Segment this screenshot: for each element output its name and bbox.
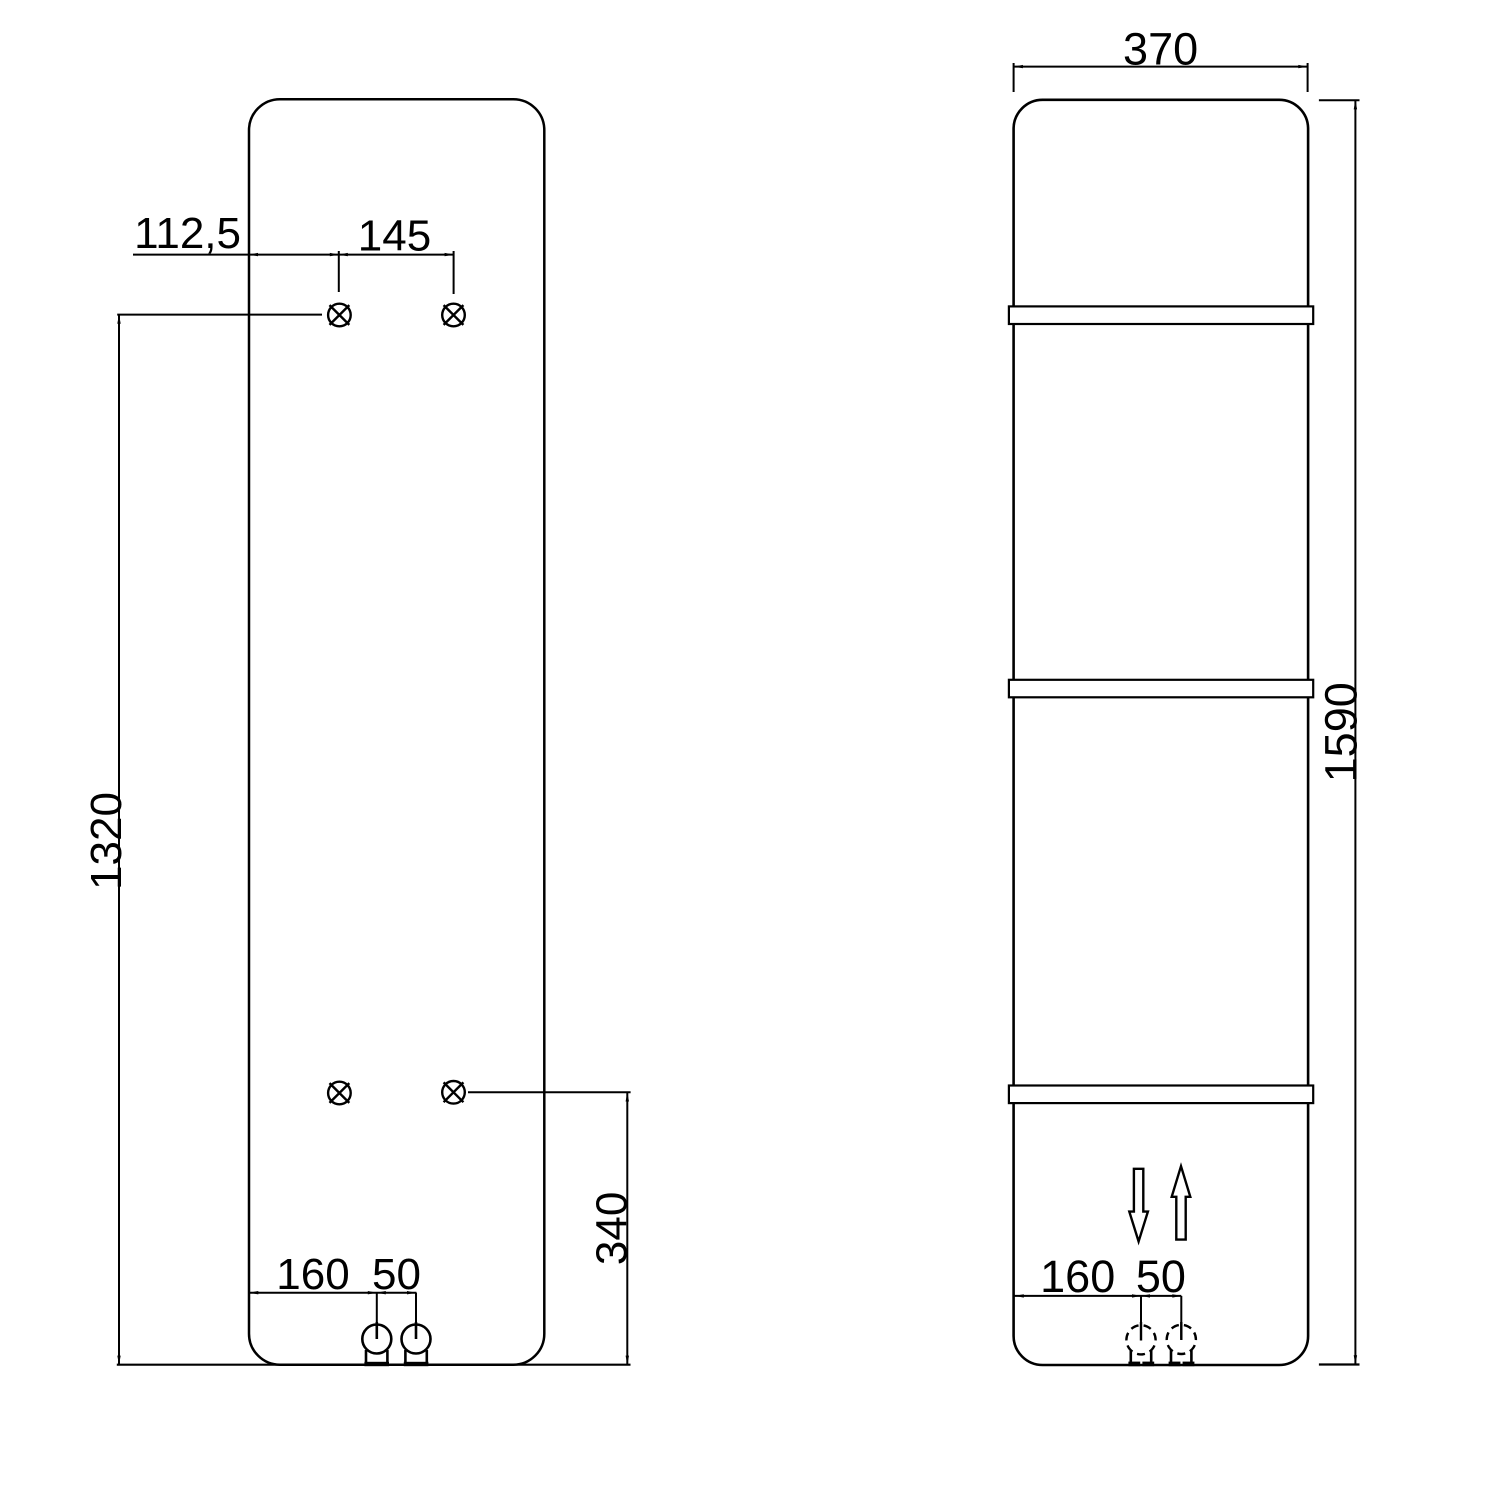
svg-text:1590: 1590 <box>1315 682 1366 782</box>
svg-text:370: 370 <box>1123 24 1198 75</box>
svg-text:145: 145 <box>358 212 431 261</box>
svg-text:112,5: 112,5 <box>134 209 241 258</box>
svg-text:50: 50 <box>1136 1251 1186 1302</box>
svg-text:160: 160 <box>276 1250 349 1299</box>
svg-text:160: 160 <box>1040 1251 1115 1302</box>
svg-text:1320: 1320 <box>82 792 131 890</box>
svg-text:50: 50 <box>372 1250 421 1299</box>
svg-text:340: 340 <box>588 1192 637 1265</box>
